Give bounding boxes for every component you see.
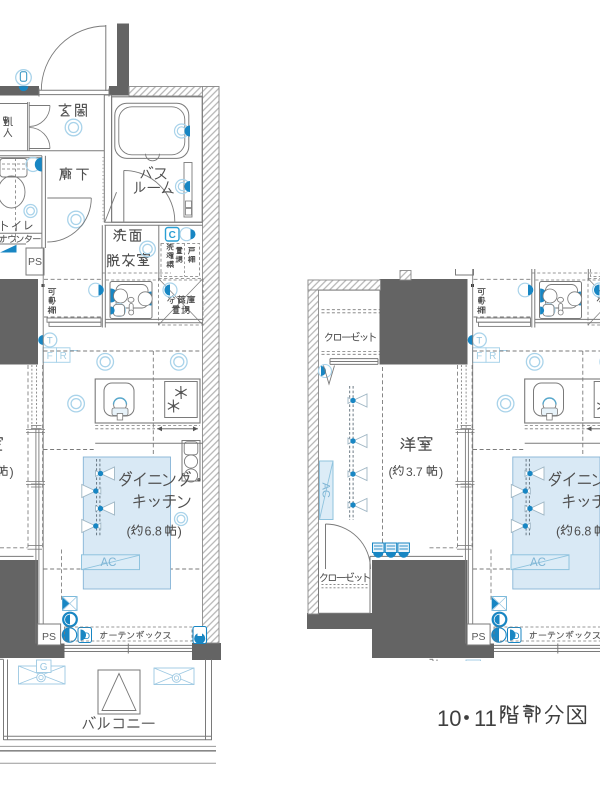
svg-text:10: 10 [437,706,461,731]
svg-text:11: 11 [474,706,497,731]
